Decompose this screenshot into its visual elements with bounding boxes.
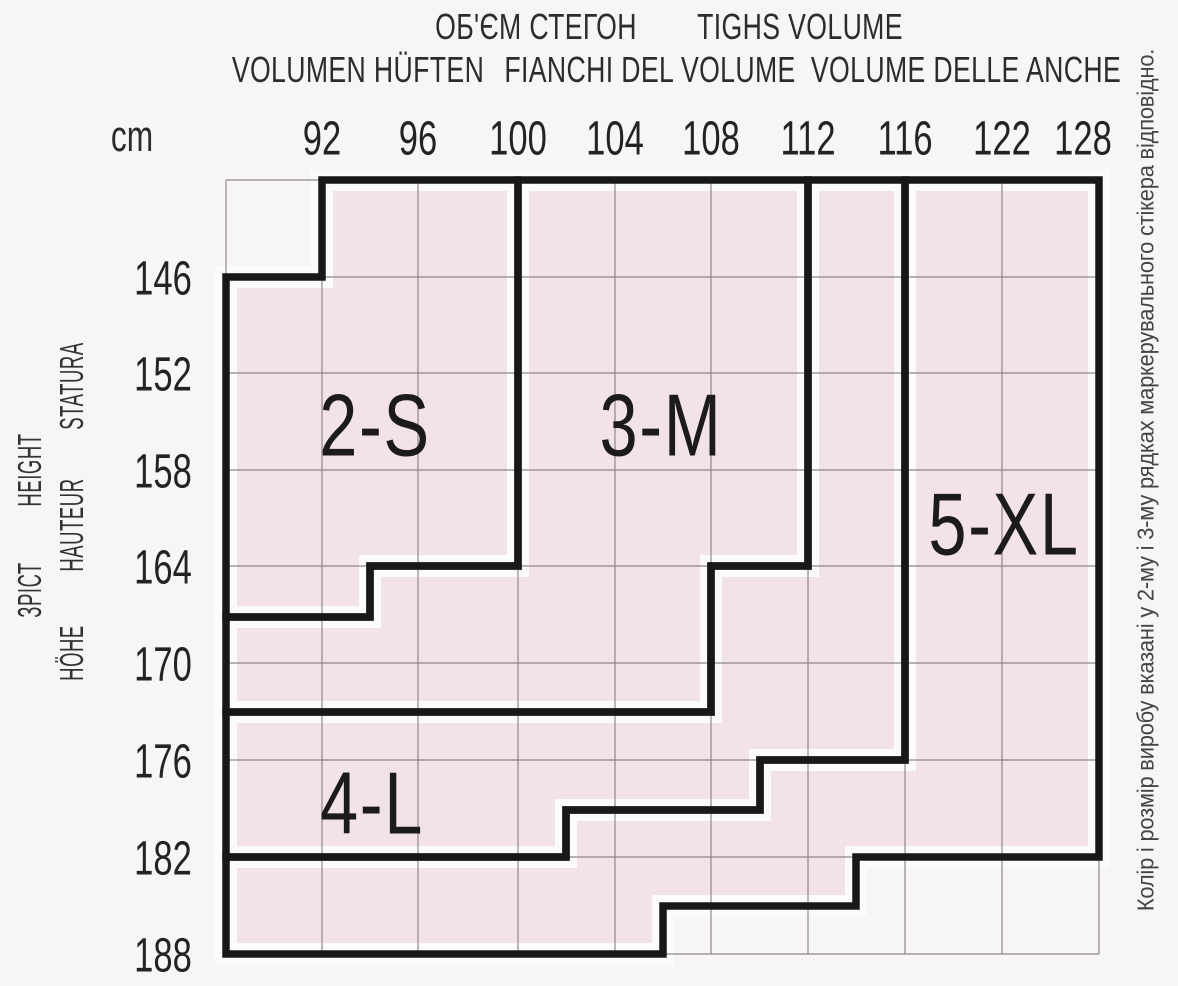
y-tick-label-152: 152 — [134, 347, 192, 401]
y-tick-label-170: 170 — [134, 637, 192, 691]
x-tick-label-116: 116 — [877, 111, 932, 165]
size-label-5-XL: 5-XL — [928, 476, 1079, 574]
x-tick-label-104: 104 — [586, 111, 644, 165]
x-tick-label-128: 128 — [1054, 111, 1112, 165]
x-tick-label-92: 92 — [303, 111, 341, 165]
x-tick-label-96: 96 — [399, 111, 437, 165]
x-tick-label-112: 112 — [780, 111, 835, 165]
y-tick-label-158: 158 — [134, 444, 192, 498]
x-tick-label-122: 122 — [973, 111, 1031, 165]
y-tick-label-182: 182 — [134, 831, 192, 885]
size-label-2-S: 2-S — [319, 377, 430, 475]
size-label-3-M: 3-M — [600, 377, 723, 475]
x-tick-label-100: 100 — [489, 111, 547, 165]
x-tick-label-108: 108 — [682, 111, 740, 165]
size-chart-svg: 9296100104108112116122128146152158164170… — [0, 0, 1178, 986]
size-chart-page: ОБ'ЄМ СТЕГОН TIGHS VOLUME VOLUMEN HÜFTEN… — [0, 0, 1178, 986]
y-tick-label-164: 164 — [134, 540, 192, 594]
y-tick-label-176: 176 — [134, 734, 192, 788]
y-tick-label-188: 188 — [134, 928, 192, 982]
y-tick-label-146: 146 — [134, 251, 192, 305]
size-label-4-L: 4-L — [320, 755, 424, 853]
